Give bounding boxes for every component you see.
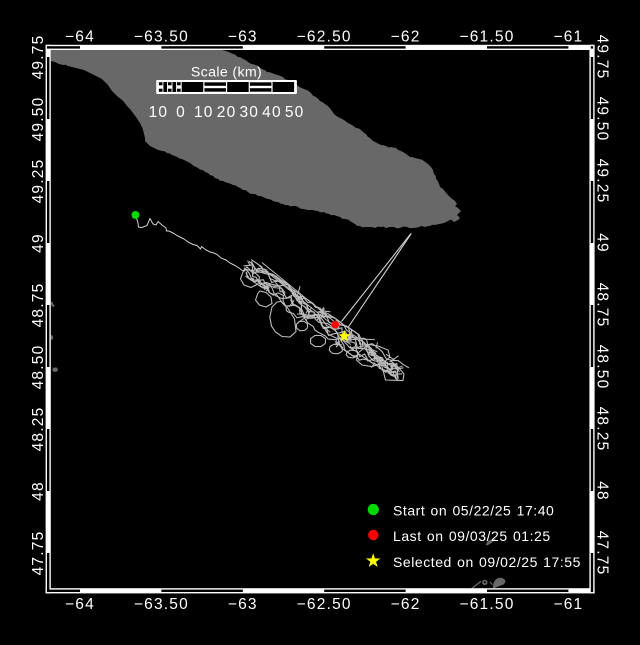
svg-text:49.50: 49.50 [30, 97, 47, 142]
svg-text:0: 0 [176, 104, 186, 121]
svg-text:20: 20 [217, 104, 237, 121]
svg-text:−62: −62 [391, 596, 421, 613]
svg-text:10: 10 [194, 104, 214, 121]
svg-text:−63: −63 [228, 29, 258, 46]
svg-text:Scale (km): Scale (km) [191, 65, 262, 81]
svg-text:47.75: 47.75 [593, 531, 610, 576]
svg-text:−64: −64 [65, 29, 95, 46]
svg-text:48.75: 48.75 [30, 283, 47, 328]
svg-text:Last on 09/03/25 01:25: Last on 09/03/25 01:25 [393, 528, 551, 544]
svg-text:48: 48 [593, 481, 610, 501]
svg-text:−61.50: −61.50 [459, 596, 514, 613]
svg-text:50: 50 [285, 104, 305, 121]
svg-text:Selected on 09/02/25 17:55: Selected on 09/02/25 17:55 [393, 554, 581, 570]
svg-text:−64: −64 [65, 596, 95, 613]
svg-text:−62.50: −62.50 [297, 596, 352, 613]
svg-text:48.50: 48.50 [593, 345, 610, 390]
svg-text:−61: −61 [553, 29, 583, 46]
svg-text:48.75: 48.75 [593, 283, 610, 328]
svg-text:−63.50: −63.50 [134, 29, 189, 46]
svg-text:30: 30 [239, 104, 259, 121]
svg-text:−63.50: −63.50 [134, 596, 189, 613]
svg-text:49.50: 49.50 [593, 97, 610, 142]
svg-text:−62: −62 [391, 29, 421, 46]
svg-text:−61: −61 [553, 596, 583, 613]
svg-text:10: 10 [149, 104, 169, 121]
svg-text:−62.50: −62.50 [297, 29, 352, 46]
svg-text:Start on 05/22/25 17:40: Start on 05/22/25 17:40 [393, 502, 554, 518]
svg-text:49.75: 49.75 [30, 35, 47, 80]
svg-text:48.25: 48.25 [593, 407, 610, 452]
svg-text:49.25: 49.25 [30, 159, 47, 204]
svg-text:−61.50: −61.50 [459, 29, 514, 46]
svg-text:49.25: 49.25 [593, 159, 610, 204]
svg-text:48.25: 48.25 [30, 407, 47, 452]
svg-text:48.50: 48.50 [30, 345, 47, 390]
svg-text:47.75: 47.75 [30, 531, 47, 576]
svg-text:48: 48 [30, 481, 47, 501]
svg-text:49: 49 [30, 233, 47, 253]
svg-text:−63: −63 [228, 596, 258, 613]
svg-text:40: 40 [262, 104, 282, 121]
svg-text:49: 49 [593, 233, 610, 253]
svg-text:49.75: 49.75 [593, 35, 610, 80]
